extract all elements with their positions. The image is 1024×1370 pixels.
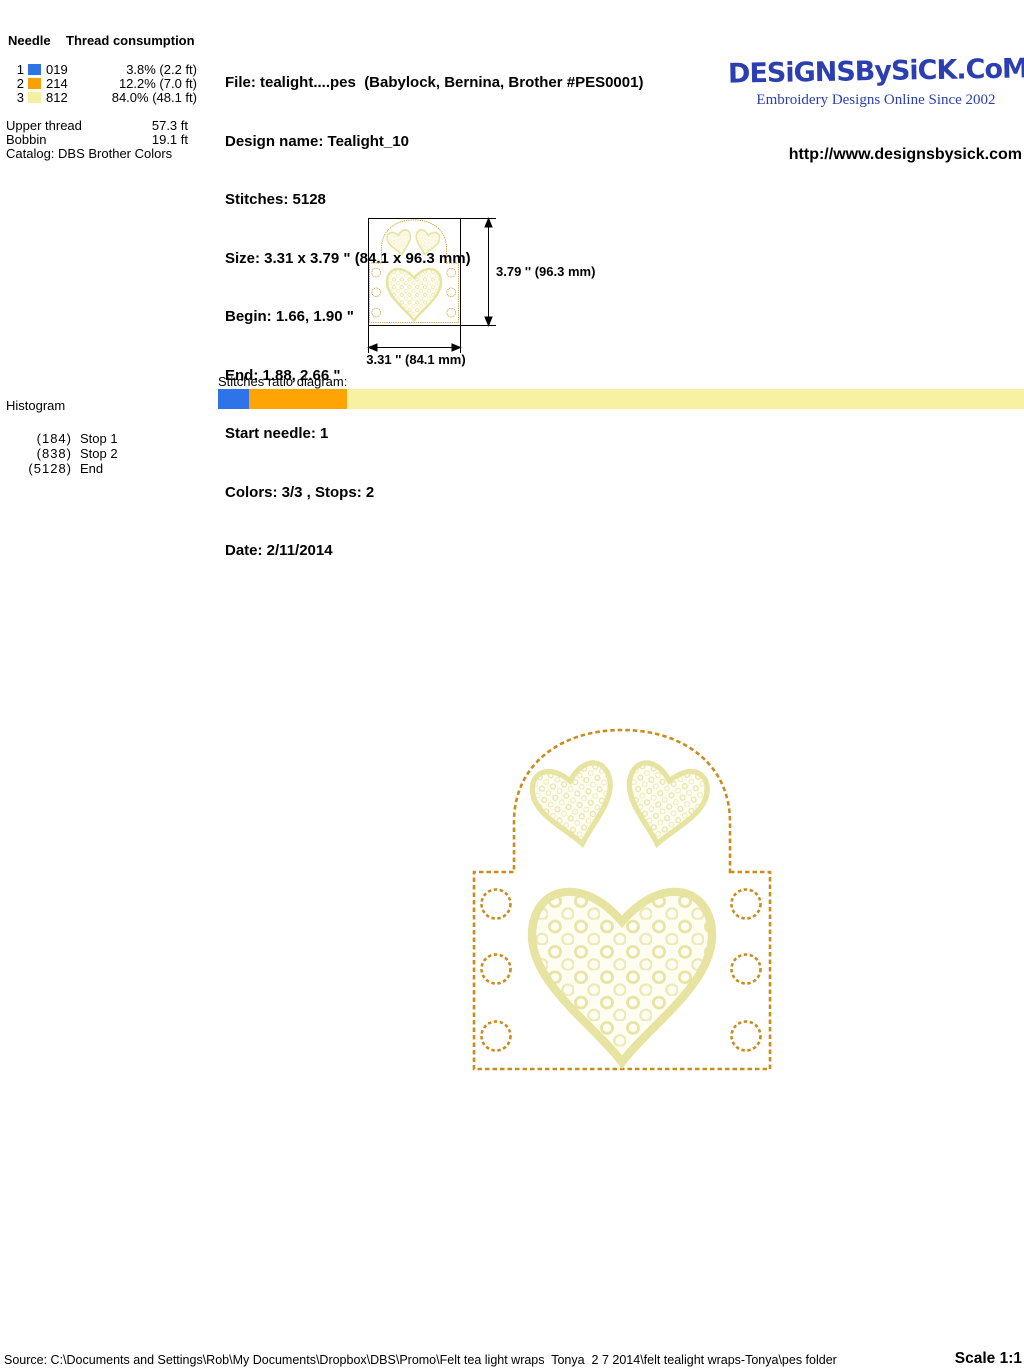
ratio-segment-needle-3 (347, 389, 1024, 409)
stop-label: Stop 1 (80, 431, 118, 446)
source-path: Source: C:\Documents and Settings\Rob\My… (4, 1353, 837, 1367)
file-info-line: File: tealight....pes (Babylock, Bernina… (225, 73, 643, 93)
dimension-arrow-right (452, 344, 461, 351)
scale-label: Scale 1:1 (955, 1350, 1022, 1368)
stitches-ratio-label: Stitches ratio diagram: (218, 374, 347, 389)
catalog-line: Catalog: DBS Brother Colors (6, 147, 172, 160)
file-info-line: Design name: Tealight_10 (225, 132, 643, 152)
thread-color-swatch (28, 64, 41, 75)
thread-code: 019 (46, 63, 68, 76)
needle-number: 2 (6, 77, 24, 90)
file-info-line: Start needle: 1 (225, 424, 643, 444)
file-info-line: Colors: 3/3 , Stops: 2 (225, 483, 643, 503)
website-url: http://www.designsbysick.com (724, 146, 1022, 164)
ratio-segment-needle-1 (218, 389, 249, 409)
width-dimension-label: 3.31 '' (84.1 mm) (354, 352, 478, 367)
brand-tagline: Embroidery Designs Online Since 2002 (728, 92, 1024, 109)
needle-number: 1 (6, 63, 24, 76)
thread-usage: 3.8% (2.2 ft) (99, 63, 197, 76)
stop-stitch-count: (184) (4, 431, 72, 446)
histogram-title: Histogram (6, 398, 65, 413)
thread-code: 812 (46, 91, 68, 104)
tealight-wrap-design (474, 730, 770, 1069)
stop-label: End (80, 461, 103, 476)
stitches-ratio-bar (218, 389, 1024, 409)
needle-column-header: Needle (8, 34, 51, 47)
dimension-extension-line (369, 326, 461, 354)
dimension-extension-line (461, 219, 497, 326)
design-render-full-size (470, 725, 774, 1073)
needle-number: 3 (6, 91, 24, 104)
stop-label: Stop 2 (80, 446, 118, 461)
upper-thread-label: Upper thread (6, 119, 82, 132)
file-info-line: Stitches: 5128 (225, 190, 643, 210)
thread-code: 214 (46, 77, 68, 90)
height-dimension-label: 3.79 '' (96.3 mm) (496, 264, 595, 279)
bobbin-label: Bobbin (6, 133, 46, 146)
thread-usage: 84.0% (48.1 ft) (99, 91, 197, 104)
consumption-column-header: Thread consumption (66, 34, 195, 47)
designsbysick-logo: DESiGNSBySiCK.CoM (728, 53, 1024, 89)
thread-color-swatch (28, 92, 41, 103)
ratio-segment-needle-2 (249, 389, 347, 409)
upper-thread-value: 57.3 ft (100, 119, 188, 132)
design-thumbnail (370, 220, 459, 323)
stop-stitch-count: (5128) (4, 461, 72, 476)
thread-color-swatch (28, 78, 41, 89)
thread-usage: 12.2% (7.0 ft) (99, 77, 197, 90)
stop-stitch-count: (838) (4, 446, 72, 461)
dimension-arrow-left (369, 344, 378, 351)
bobbin-value: 19.1 ft (100, 133, 188, 146)
file-info-line: Date: 2/11/2014 (225, 541, 643, 561)
dimension-arrow-up (485, 219, 492, 228)
dimension-arrow-down (485, 317, 492, 326)
